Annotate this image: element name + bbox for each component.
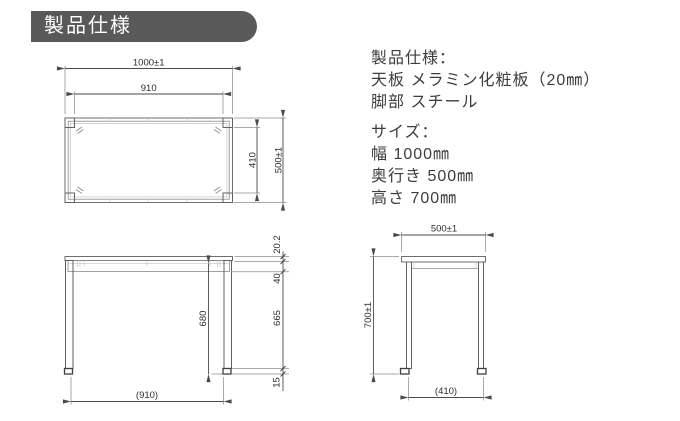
- foot-front-right: [223, 369, 231, 375]
- tabletop-side: [402, 257, 486, 263]
- dim-side-depth-total: 500±1: [431, 224, 457, 235]
- leg-side-left: [407, 262, 412, 369]
- dim-front-leg-span: (910): [136, 390, 158, 401]
- leg-side-right: [479, 262, 484, 369]
- top-view: 1000±1 910 410 500±1: [65, 58, 287, 203]
- dim-plan-depth-inner: 410: [248, 152, 259, 168]
- apron-front: [68, 261, 230, 272]
- technical-drawing: 1000±1 910 410 500±1 680: [0, 0, 680, 421]
- foot-side-left: [401, 369, 410, 375]
- side-view: 500±1 700±1 (410): [363, 224, 486, 401]
- dim-front-leg-length: 665: [272, 310, 283, 326]
- dim-plan-width-total: 1000±1: [133, 58, 165, 69]
- dim-side-leg-span: (410): [435, 386, 457, 397]
- dim-plan-width-inner: 910: [141, 83, 157, 94]
- leg-corner-plan: [223, 193, 233, 203]
- dim-side-height-total: 700±1: [363, 302, 374, 328]
- leg-front-right: [224, 261, 232, 369]
- front-view: 680 20.2 40 665 15 (910): [65, 235, 290, 404]
- tabletop-outline-plan: [65, 118, 233, 203]
- page: 製品仕様 製品仕様： 天板 メラミン化粧板（20㎜） 脚部 スチール サイズ： …: [0, 0, 680, 421]
- dim-front-underside-height: 680: [198, 311, 209, 327]
- leg-corner-plan: [65, 118, 75, 128]
- dim-front-apron-height: 40: [272, 273, 283, 284]
- leg-front-left: [66, 261, 74, 369]
- foot-front-left: [65, 369, 73, 375]
- dim-front-foot-height: 15: [272, 377, 283, 388]
- leg-corner-plan: [65, 193, 75, 203]
- foot-side-right: [478, 369, 487, 375]
- leg-corner-plan: [223, 118, 233, 128]
- dim-plan-depth-total: 500±1: [274, 147, 285, 173]
- dim-front-top-thickness: 20.2: [272, 235, 283, 254]
- tabletop-front: [65, 257, 233, 261]
